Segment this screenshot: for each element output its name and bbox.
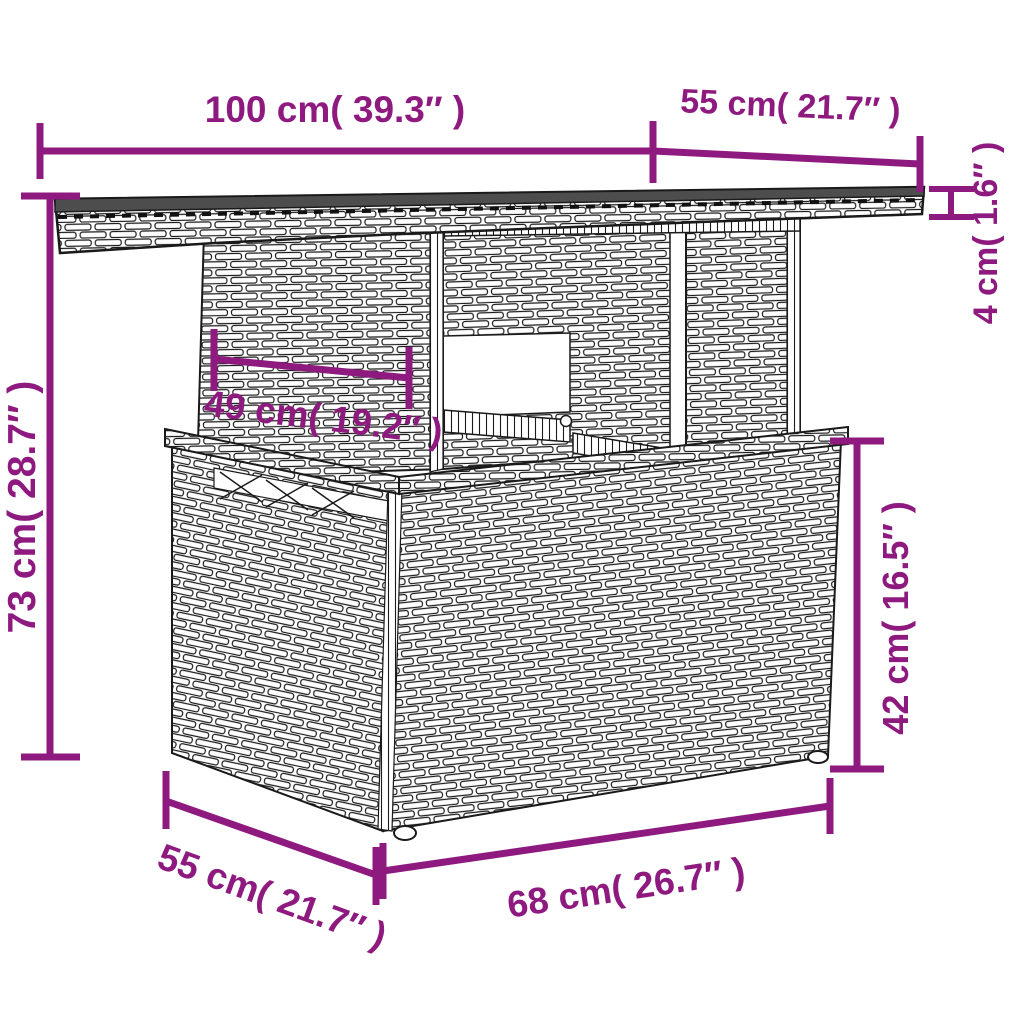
diagram-canvas: 100 cm( 39.3″ ) 55 cm( 21.7″ ) 4 cm( 1.6…: [0, 0, 1024, 1024]
dimension-label-tabletop-thickness: 4 cm( 1.6″ ): [967, 142, 1005, 325]
dimension-line: [40, 121, 653, 183]
dimension-tabletop-depth: [653, 136, 920, 192]
table-base: [165, 427, 848, 840]
dimension-label-tabletop-depth: 55 cm( 21.7″ ): [680, 82, 902, 130]
dimension-label-base-width: 68 cm( 26.7″ ): [505, 850, 748, 926]
dimension-tabletop-width: [40, 121, 653, 183]
dimension-label-base-height: 42 cm( 16.5″ ): [875, 501, 916, 734]
dimension-label-tabletop-width: 100 cm( 39.3″ ): [205, 89, 465, 130]
base-right-face: [383, 440, 841, 831]
pedestal-window: [443, 333, 570, 417]
pedestal-divider: [670, 220, 686, 449]
base-foot: [808, 751, 828, 763]
dimension-diagram: 100 cm( 39.3″ ) 55 cm( 21.7″ ) 4 cm( 1.6…: [0, 0, 1024, 1024]
pedestal-column-edge: [787, 216, 800, 444]
base-foot: [394, 826, 416, 840]
table-pedestal: [197, 213, 800, 477]
table-illustration: [55, 187, 924, 840]
dimension-label-total-height: 73 cm( 28.7″ ): [1, 381, 44, 634]
pedestal-right-column: [686, 216, 800, 447]
rail-knob: [561, 416, 572, 427]
dimension-label-base-depth: 55 cm( 21.7″ ): [153, 836, 392, 957]
dimension-line: [653, 136, 920, 192]
